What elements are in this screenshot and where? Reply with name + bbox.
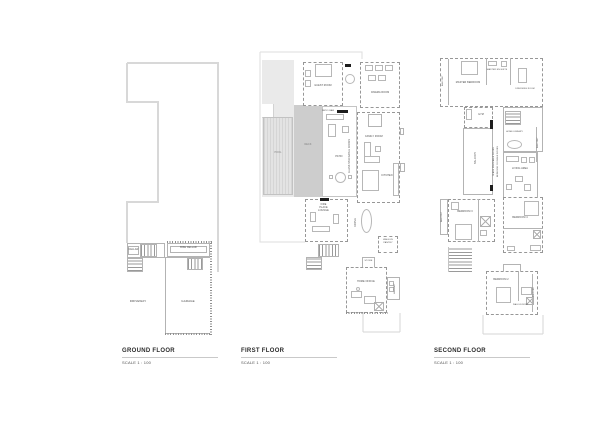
first-driveway-ramp-lines — [363, 313, 400, 332]
table — [515, 176, 523, 182]
patio-bar-label: PATIO BAR — [320, 110, 336, 113]
stairs — [505, 111, 521, 125]
door-marker — [345, 64, 351, 67]
chair — [329, 175, 333, 179]
pantry-label: WALK-IN PANTRY — [379, 239, 397, 244]
pool-area — [263, 117, 293, 195]
shower-box — [533, 230, 541, 239]
paving-step-notch — [262, 104, 274, 118]
door-marker — [490, 123, 493, 129]
master-bedroom-label: MASTER BEDROOM — [455, 82, 481, 85]
door-marker — [490, 185, 493, 191]
laundry-label: LAUNDRY — [394, 281, 397, 297]
deck-area — [294, 105, 322, 197]
entry-feature — [345, 74, 355, 84]
glass-doors-label: GLASS STACKABLE DOORS — [493, 136, 495, 188]
sofa — [385, 65, 393, 71]
pool-label: POOL — [263, 152, 293, 155]
home-office-wall-bottom — [346, 312, 388, 315]
bathtub — [530, 245, 541, 251]
garage-label: GARAGE — [170, 300, 206, 304]
sofa — [378, 75, 386, 81]
chair — [521, 157, 527, 163]
master-ensuite-label: MASTER EN-SUITE — [486, 69, 508, 72]
balcony-label: BALCONY — [442, 70, 445, 92]
balcony-label: BALCONY — [441, 206, 443, 228]
title-rule — [241, 357, 337, 358]
bathtub — [488, 61, 497, 66]
bed — [496, 287, 511, 303]
wall — [518, 271, 519, 301]
toilet — [480, 230, 487, 236]
fireplace-lounge-label: FIRE PLACE LOUNGE — [317, 204, 330, 213]
second-floor-title: SECOND FLOOR — [434, 348, 486, 354]
bathtub — [521, 287, 532, 295]
stairs — [318, 244, 339, 257]
deck-label: DECK — [294, 144, 322, 147]
armchair — [310, 212, 316, 222]
patio-bar-counter — [337, 110, 348, 113]
kitchen-counter — [393, 163, 399, 196]
sofa — [328, 124, 336, 137]
cinema-room-label: CINEMA ROOM — [364, 92, 396, 95]
balcony-label: BALCONY — [533, 282, 535, 302]
desk — [351, 291, 362, 298]
utility-room — [368, 114, 382, 127]
family-room-label: FAMILY ROOM — [360, 136, 388, 139]
stairs — [448, 247, 472, 272]
glass-doors-label: GLASS STACKABLE DOORS — [349, 132, 352, 180]
fireplace — [320, 198, 329, 201]
first-floor-title: FIRST FLOOR — [241, 348, 284, 354]
sofa — [368, 75, 376, 81]
bike-cellar-label: BIKE CELLAR — [170, 247, 207, 250]
chair — [342, 126, 349, 133]
walk-in-robe-label: WALK-IN ROBE — [512, 304, 529, 306]
second-floor-scale: SCALE 1 : 100 — [434, 360, 463, 365]
guest-room-label: GUEST ROOM — [308, 85, 338, 88]
bed — [455, 224, 472, 240]
second-lower-lot-lines — [483, 315, 543, 334]
living-area-label: LIVING AREA — [507, 168, 533, 171]
kitchen-island — [362, 170, 379, 191]
wall — [478, 199, 479, 242]
ground-floor-scale: SCALE 1 : 100 — [122, 360, 151, 365]
bed — [524, 201, 539, 216]
sofa — [364, 156, 380, 163]
stairs — [127, 258, 143, 272]
sofa — [375, 65, 383, 71]
ground-lot-notch-outline — [127, 63, 158, 243]
double-doors-label: BEDROOM 3 DOUBLE DOORS — [497, 134, 499, 190]
wall — [486, 58, 487, 85]
first-lot-outline-top — [260, 52, 362, 59]
driveway-label: DRIVEWAY — [122, 300, 154, 304]
ground-floor-title: GROUND FLOOR — [122, 348, 175, 354]
bed — [461, 61, 478, 75]
bedroom4-label: BEDROOM 4 — [507, 217, 533, 220]
balcony-label: BALCONY — [475, 146, 478, 170]
wall — [503, 228, 543, 229]
bedroom3-label: BEDROOM 3 — [452, 211, 478, 214]
chair — [305, 70, 311, 77]
dressing-room-label: DRESSING ROOM — [513, 88, 537, 91]
chair — [451, 202, 459, 210]
title-rule — [434, 357, 530, 358]
stairs — [306, 257, 322, 270]
stairs — [140, 244, 157, 257]
chimney — [400, 128, 404, 135]
armchair — [333, 214, 339, 224]
cellar-label: CELLAR — [126, 249, 141, 252]
bedroom2-label: BEDROOM 2 — [489, 279, 513, 282]
wall — [510, 58, 511, 85]
bar-counter — [326, 114, 344, 120]
wardrobe-island — [518, 68, 527, 83]
home-library-label: HOME LIBRARY — [505, 131, 524, 134]
balcony-label: BALCONY — [537, 132, 540, 154]
first-floor-scale: SCALE 1 : 100 — [241, 360, 270, 365]
dining-label: DINING — [355, 213, 358, 233]
sofa — [506, 156, 519, 162]
gym-label: GYM — [472, 114, 490, 117]
sofa — [312, 226, 330, 232]
garage-wall-bottom — [165, 333, 212, 336]
store-label: STORE — [362, 260, 375, 263]
chair — [529, 157, 535, 163]
sofa — [365, 65, 373, 71]
shower-box — [374, 302, 384, 311]
shower-box — [480, 216, 491, 227]
coffee-table — [375, 146, 381, 152]
dining-table — [361, 209, 372, 233]
title-rule — [122, 357, 218, 358]
home-office-label: HOME OFFICE — [351, 281, 381, 284]
floor-plan-sheet: CELLAR BIKE CELLAR GARAGE DRIVEWAY POOL … — [0, 0, 600, 424]
bed — [315, 64, 332, 77]
office-chair — [356, 287, 360, 291]
library-table — [507, 140, 522, 149]
vanity — [507, 246, 515, 251]
shower — [501, 61, 507, 67]
round-table — [335, 172, 346, 183]
chair — [506, 184, 512, 190]
garage-room — [165, 257, 210, 334]
chair — [524, 184, 531, 191]
balcony-long — [463, 128, 493, 195]
chimney — [400, 163, 405, 172]
